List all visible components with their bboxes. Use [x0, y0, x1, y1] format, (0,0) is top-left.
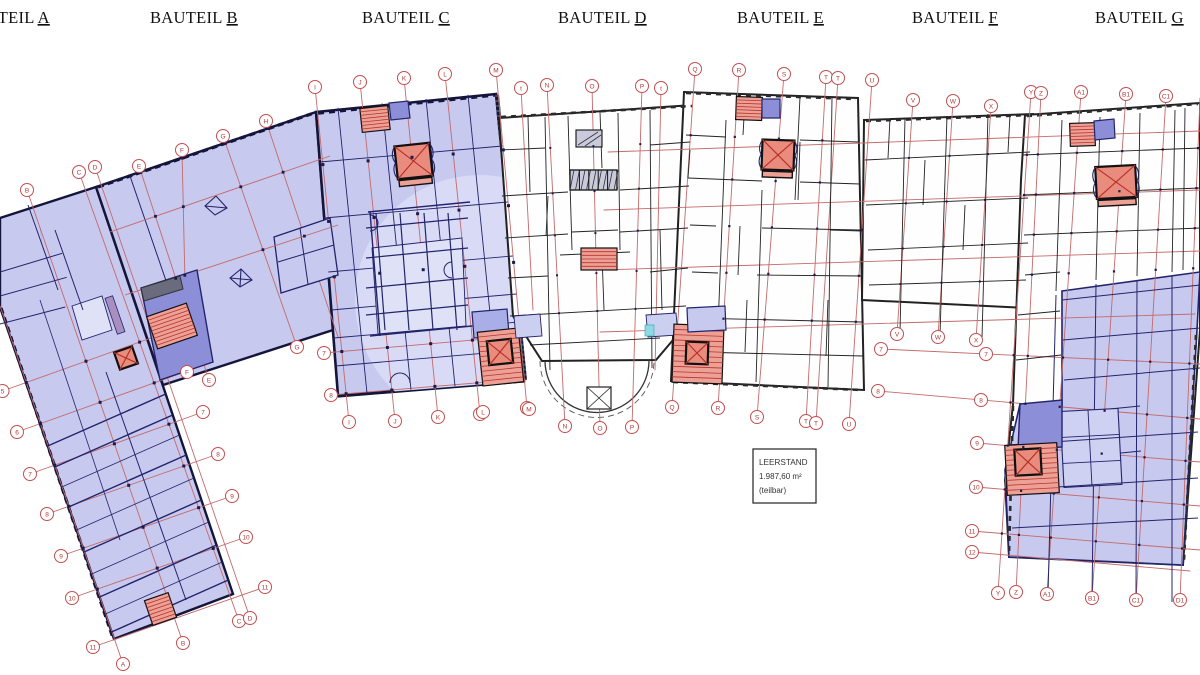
svg-text:D1: D1 [1176, 597, 1185, 604]
svg-text:T: T [836, 75, 840, 82]
svg-text:B1: B1 [1122, 91, 1130, 98]
svg-text:10: 10 [242, 534, 250, 541]
svg-text:B1: B1 [1088, 595, 1096, 602]
svg-text:t: t [520, 85, 522, 92]
svg-text:S: S [782, 71, 787, 78]
svg-text:7: 7 [28, 471, 32, 478]
svg-text:B: B [25, 187, 29, 194]
svg-text:11: 11 [90, 644, 97, 651]
svg-text:O: O [597, 425, 602, 432]
svg-text:7: 7 [879, 346, 883, 353]
svg-text:BAUTEIL B: BAUTEIL B [150, 8, 238, 27]
svg-text:6: 6 [15, 429, 19, 436]
svg-text:9: 9 [230, 493, 234, 500]
svg-text:I: I [348, 419, 350, 426]
svg-text:K: K [402, 75, 407, 82]
svg-text:U: U [847, 421, 852, 428]
svg-text:A1: A1 [1077, 89, 1085, 96]
svg-text:N: N [563, 423, 568, 430]
svg-text:W: W [935, 334, 942, 341]
svg-text:F: F [185, 369, 189, 376]
svg-text:N: N [545, 82, 550, 89]
svg-text:M: M [493, 67, 498, 74]
svg-text:R: R [716, 405, 721, 412]
svg-text:Q: Q [692, 66, 697, 73]
svg-text:Z: Z [1014, 589, 1018, 596]
svg-text:BAUTEIL D: BAUTEIL D [558, 8, 647, 27]
svg-text:S: S [755, 414, 760, 421]
svg-text:8: 8 [876, 388, 880, 395]
svg-text:W: W [950, 98, 957, 105]
svg-text:C: C [77, 169, 82, 176]
svg-text:12: 12 [968, 549, 976, 556]
svg-text:10: 10 [68, 595, 76, 602]
svg-text:Y: Y [1029, 89, 1034, 96]
svg-text:8: 8 [216, 451, 220, 458]
svg-text:P: P [630, 424, 634, 431]
svg-text:8: 8 [45, 511, 49, 518]
svg-text:X: X [974, 337, 979, 344]
svg-text:9: 9 [975, 440, 979, 447]
svg-text:J: J [358, 79, 361, 86]
svg-text:A: A [121, 661, 126, 668]
svg-text:I: I [314, 84, 316, 91]
svg-text:1.987,60 m²: 1.987,60 m² [759, 472, 802, 481]
svg-text:T: T [824, 74, 828, 81]
svg-text:(teilbar): (teilbar) [759, 486, 786, 495]
svg-text:Y: Y [996, 590, 1001, 597]
svg-text:D: D [93, 164, 98, 171]
svg-text:t: t [660, 85, 662, 92]
svg-text:E: E [207, 377, 212, 384]
svg-text:J: J [393, 418, 396, 425]
svg-text:K: K [436, 414, 441, 421]
svg-text:F: F [180, 147, 184, 154]
svg-text:8: 8 [979, 397, 983, 404]
svg-text:8: 8 [329, 392, 333, 399]
svg-text:T: T [814, 420, 818, 427]
svg-text:H: H [264, 118, 269, 125]
svg-text:V: V [895, 331, 900, 338]
svg-text:7: 7 [984, 351, 988, 358]
svg-text:11: 11 [262, 584, 269, 591]
svg-text:BAUTEIL A: BAUTEIL A [0, 8, 50, 27]
svg-text:BAUTEIL F: BAUTEIL F [912, 8, 998, 27]
svg-text:A1: A1 [1043, 591, 1051, 598]
svg-text:BAUTEIL E: BAUTEIL E [737, 8, 824, 27]
svg-text:R: R [737, 67, 742, 74]
svg-text:O: O [589, 83, 594, 90]
svg-text:L: L [481, 409, 485, 416]
svg-text:M: M [526, 406, 531, 413]
svg-text:Q: Q [669, 404, 674, 411]
svg-text:L: L [443, 71, 447, 78]
svg-text:G: G [294, 344, 299, 351]
svg-text:7: 7 [201, 409, 205, 416]
svg-text:7: 7 [322, 350, 326, 357]
svg-text:BAUTEIL G: BAUTEIL G [1095, 8, 1184, 27]
svg-text:Z: Z [1039, 90, 1043, 97]
svg-text:B: B [181, 640, 185, 647]
svg-text:U: U [870, 77, 875, 84]
svg-text:X: X [989, 103, 994, 110]
svg-text:11: 11 [969, 528, 976, 535]
svg-text:C1: C1 [1132, 597, 1141, 604]
svg-text:10: 10 [972, 484, 980, 491]
svg-text:9: 9 [59, 553, 63, 560]
svg-text:G: G [220, 133, 225, 140]
svg-text:D: D [248, 615, 253, 622]
svg-text:5: 5 [1, 388, 5, 395]
svg-text:LEERSTAND: LEERSTAND [759, 458, 808, 467]
svg-text:C: C [237, 618, 242, 625]
svg-text:T: T [804, 418, 808, 425]
svg-text:BAUTEIL C: BAUTEIL C [362, 8, 450, 27]
svg-text:E: E [137, 163, 142, 170]
svg-text:V: V [911, 97, 916, 104]
svg-text:P: P [640, 83, 644, 90]
svg-text:C1: C1 [1162, 93, 1171, 100]
